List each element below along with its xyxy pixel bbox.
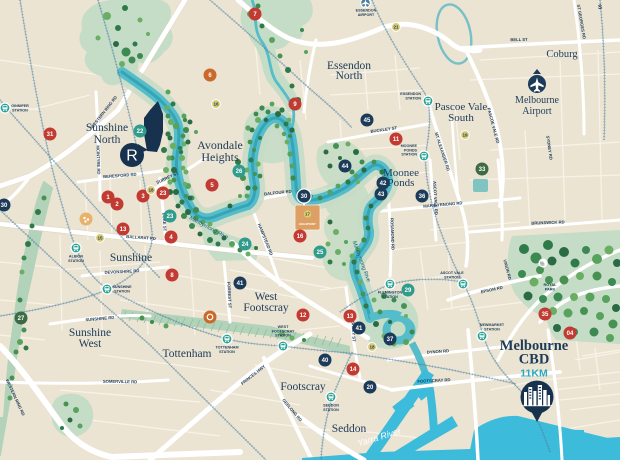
svg-text:36: 36 [419, 194, 426, 200]
svg-text:STATION: STATION [219, 350, 235, 354]
svg-text:41: 41 [237, 281, 244, 287]
svg-text:BELL ST: BELL ST [510, 37, 528, 42]
svg-text:STATION: STATION [444, 275, 460, 279]
svg-text:33: 33 [479, 167, 486, 173]
svg-text:North: North [336, 70, 363, 82]
svg-text:STATION: STATION [401, 153, 417, 157]
svg-text:27: 27 [18, 316, 25, 322]
svg-text:18: 18 [148, 188, 154, 193]
svg-text:11KM: 11KM [520, 368, 548, 380]
svg-text:18: 18 [369, 345, 375, 350]
svg-text:Sunshine: Sunshine [110, 252, 152, 264]
svg-text:West: West [79, 338, 103, 350]
svg-text:42: 42 [380, 181, 387, 187]
svg-text:30: 30 [1, 203, 8, 209]
svg-text:15: 15 [97, 236, 103, 241]
svg-text:Ponds: Ponds [388, 177, 415, 189]
svg-text:STATION: STATION [275, 334, 291, 338]
svg-text:23: 23 [167, 214, 174, 220]
svg-text:43: 43 [378, 192, 385, 198]
svg-text:25: 25 [317, 250, 324, 256]
svg-text:PARK: PARK [545, 288, 556, 292]
svg-text:South: South [448, 112, 474, 124]
svg-text:16: 16 [297, 234, 304, 240]
svg-text:STATION: STATION [382, 295, 398, 299]
svg-text:STATION: STATION [114, 289, 130, 293]
svg-text:29: 29 [405, 288, 412, 294]
svg-text:16: 16 [213, 102, 219, 107]
svg-text:37: 37 [387, 337, 394, 343]
svg-text:Footscray: Footscray [243, 302, 289, 314]
svg-text:31: 31 [47, 132, 54, 138]
svg-text:Tottenham: Tottenham [162, 348, 211, 360]
svg-text:44: 44 [342, 164, 349, 170]
svg-text:ROYAL: ROYAL [544, 283, 558, 287]
svg-text:SOMERVILLE RD: SOMERVILLE RD [103, 379, 137, 385]
svg-text:AIRPORT: AIRPORT [358, 13, 375, 17]
svg-text:Sunshine: Sunshine [86, 122, 128, 134]
svg-text:Footscray: Footscray [280, 381, 326, 393]
svg-text:Seddon: Seddon [332, 423, 367, 435]
svg-text:19: 19 [462, 133, 468, 138]
svg-text:CBD: CBD [519, 352, 550, 368]
svg-text:STATION: STATION [484, 327, 500, 331]
svg-text:Airport: Airport [522, 106, 552, 117]
svg-text:13: 13 [347, 314, 354, 320]
svg-text:STATION: STATION [12, 108, 28, 112]
svg-text:45: 45 [364, 118, 371, 124]
svg-text:R: R [126, 148, 138, 165]
svg-text:MCINTYRE RD: MCINTYRE RD [95, 145, 101, 174]
svg-text:North: North [94, 134, 121, 146]
svg-text:STATION: STATION [323, 408, 339, 412]
svg-text:HIGHPOINT: HIGHPOINT [299, 222, 316, 226]
svg-text:S: S [598, 5, 602, 11]
svg-text:24: 24 [242, 242, 249, 248]
svg-text:Heights: Heights [201, 150, 239, 164]
svg-text:13: 13 [120, 227, 127, 233]
svg-text:🐘: 🐘 [540, 261, 546, 268]
svg-text:17: 17 [305, 212, 310, 217]
svg-text:30: 30 [301, 194, 308, 200]
svg-text:11: 11 [393, 137, 400, 143]
svg-text:26: 26 [236, 169, 243, 175]
svg-text:STATION: STATION [405, 96, 421, 100]
svg-text:22: 22 [137, 129, 144, 135]
svg-text:04: 04 [567, 331, 574, 337]
svg-text:Coburg: Coburg [546, 49, 578, 60]
svg-text:20: 20 [367, 385, 374, 391]
svg-text:12: 12 [300, 313, 307, 319]
svg-text:21: 21 [393, 25, 399, 30]
svg-text:Melbourne: Melbourne [515, 95, 559, 106]
svg-text:41: 41 [356, 326, 363, 332]
svg-text:40: 40 [322, 358, 329, 364]
svg-text:14: 14 [350, 367, 357, 373]
svg-text:STATION: STATION [68, 259, 84, 263]
svg-text:23: 23 [160, 191, 167, 197]
svg-text:35: 35 [542, 312, 549, 318]
